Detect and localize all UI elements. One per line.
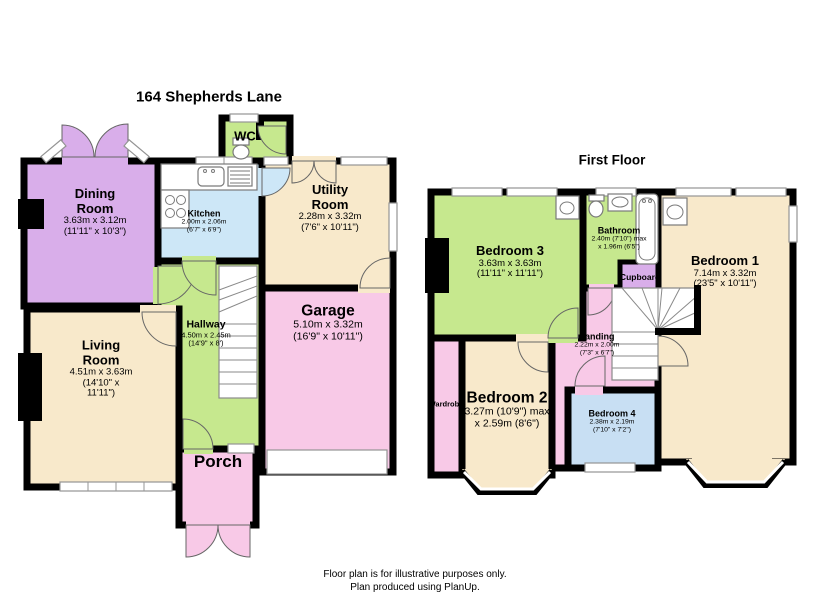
- room-dims-imperial: (6'7" x 6'9"): [182, 226, 227, 234]
- room-name: Landing: [575, 331, 620, 341]
- bedroom1-sink: [663, 198, 687, 225]
- room-name: Bedroom 3: [476, 244, 544, 259]
- french-door-dining-right: [95, 124, 128, 157]
- chimney-living: [18, 353, 42, 421]
- room-label-wardrobe: Wardrobe: [429, 400, 464, 409]
- room-label-bedroom4: Bedroom 4 2.38m x 2.19m (7'10" x 7'2"): [588, 408, 635, 433]
- window-bedroom1-right: [736, 188, 786, 196]
- room-name: Kitchen: [182, 208, 227, 218]
- room-dims-imperial: x 2.59m (8'6"): [464, 419, 549, 431]
- room-label-bedroom2: Bedroom 2 3.27m (10'9") max x 2.59m (8'6…: [464, 390, 549, 431]
- window-bedroom1-side: [789, 206, 797, 242]
- bay-window-bedroom2: [462, 469, 552, 492]
- room-name: Dining Room: [59, 187, 131, 216]
- room-dims-imperial: x 1.96m (6'5"): [591, 243, 646, 251]
- room-name: Utility Room: [294, 183, 366, 212]
- room-dims-metric: 2.38m x 2.19m: [588, 418, 635, 426]
- room-label-kitchen: Kitchen 2.00m x 2.06m (6'7" x 6'9"): [182, 208, 227, 233]
- chimney-dining: [18, 199, 44, 229]
- room-dims-metric: 2.22m x 2.00m: [575, 341, 620, 349]
- room-label-porch: Porch: [194, 452, 242, 472]
- room-dims-metric: 2.40m (7'10") max: [591, 235, 646, 243]
- footer-disclaimer: Floor plan is for illustrative purposes …: [323, 569, 506, 594]
- window-bedroom3-right: [507, 188, 557, 196]
- bedroom3-sink: [556, 196, 579, 219]
- window-utility-side: [389, 203, 397, 251]
- room-name: Garage: [293, 303, 363, 320]
- footer-line-1: Floor plan is for illustrative purposes …: [323, 569, 506, 582]
- room-name: Bedroom 4: [588, 408, 635, 418]
- room-name: Bedroom 2: [464, 390, 549, 407]
- french-door-dining-left: [62, 125, 94, 157]
- room-label-hallway: Hallway 4.50m x 2.45m (14'9" x 8'): [181, 320, 231, 349]
- ground-floor-title: 164 Shepherds Lane: [136, 89, 282, 106]
- room-dims-imperial: (16'9" x 10'11"): [293, 332, 363, 344]
- window-utility-left: [264, 157, 288, 165]
- room-dims-imperial: (14'10" x 11'11"): [68, 378, 134, 399]
- porch-door-right: [218, 525, 250, 557]
- porch-door-left: [186, 525, 218, 557]
- room-name: Living Room: [68, 339, 134, 368]
- room-label-dining: Dining Room 3.63m x 3.12m (11'11" x 10'3…: [59, 187, 131, 237]
- room-label-bedroom3: Bedroom 3 3.63m x 3.63m (11'11" x 11'11"…: [476, 244, 544, 280]
- room-label-garage: Garage 5.10m x 3.32m (16'9" x 10'11"): [293, 303, 363, 344]
- footer-line-2: Plan produced using PlanUp.: [323, 582, 506, 595]
- room-name: Bedroom 1: [691, 254, 759, 269]
- room-label-bathroom: Bathroom 2.40m (7'10") max x 1.96m (6'5"…: [591, 225, 646, 250]
- window-utility-right: [341, 157, 387, 165]
- bay-window-bedroom1: [686, 459, 785, 485]
- room-dims-imperial: (7'6" x 10'11"): [294, 223, 366, 234]
- room-dims-imperial: (23'5" x 10'11"): [691, 279, 759, 290]
- room-dims-imperial: (7'10" x 7'2"): [588, 426, 635, 434]
- room-label-cupboard: Cupboard: [620, 272, 660, 282]
- room-dims-imperial: (14'9" x 8'): [181, 340, 231, 348]
- window-bedroom1-left: [676, 188, 731, 196]
- room-dims-imperial: (11'11" x 10'3"): [59, 227, 131, 238]
- window-bedroom4: [585, 463, 635, 472]
- room-name: Hallway: [181, 320, 231, 332]
- room-label-living: Living Room 4.51m x 3.63m (14'10" x 11'1…: [68, 339, 134, 400]
- garage-door: [267, 450, 387, 474]
- room-label-wc: WC: [234, 129, 256, 144]
- first-floor-title: First Floor: [579, 153, 646, 168]
- window-wc: [230, 114, 258, 122]
- room-label-utility: Utility Room 2.28m x 3.32m (7'6" x 10'11…: [294, 183, 366, 233]
- floorplan-drawing: [0, 0, 825, 600]
- floorplan-page: 164 Shepherds Lane First Floor Dining Ro…: [0, 0, 825, 600]
- room-label-landing: Landing 2.22m x 2.00m (7'3" x 6'7"): [575, 331, 620, 356]
- room-dims-imperial: (11'11" x 11'11"): [476, 269, 544, 280]
- chimney-bedroom3: [425, 238, 449, 293]
- room-label-bedroom1: Bedroom 1 7.14m x 3.32m (23'5" x 10'11"): [691, 254, 759, 290]
- window-bedroom3-left: [452, 188, 502, 196]
- room-dims-imperial: (7'3" x 6'7"): [575, 349, 620, 357]
- room-name: Bathroom: [591, 225, 646, 235]
- room-dims-metric: 2.00m x 2.06m: [182, 218, 227, 226]
